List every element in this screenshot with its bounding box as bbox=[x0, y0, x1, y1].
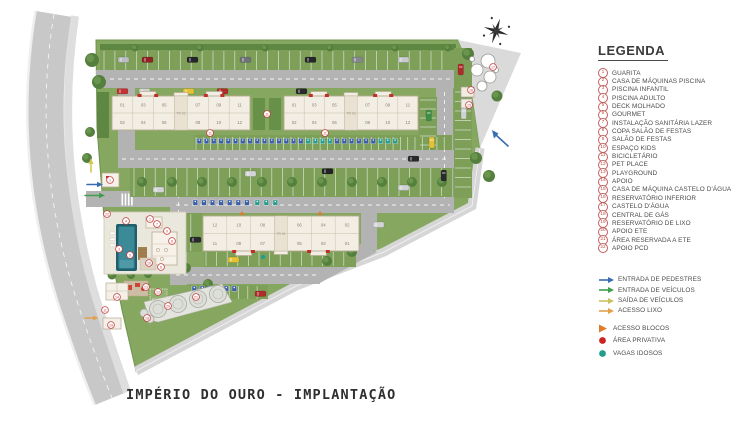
unit-number: 06 bbox=[332, 120, 337, 125]
legend-item-label: GOURMET bbox=[612, 111, 645, 118]
accessible-stall-badge bbox=[245, 200, 250, 205]
accessible-stall-badge bbox=[212, 139, 217, 144]
pedestrian-entrance-arrow bbox=[87, 182, 103, 187]
legend-item: 5DECK MOLHADO bbox=[598, 102, 744, 110]
accessible-stall-badge bbox=[193, 200, 198, 205]
car-icon bbox=[373, 222, 384, 228]
car-icon bbox=[426, 110, 432, 121]
plan-marker-number: 3 bbox=[118, 247, 120, 251]
unit-number: 08 bbox=[260, 223, 265, 228]
legend-item: 9SALÃO DE FESTAS bbox=[598, 136, 744, 144]
unit-number: 10 bbox=[385, 120, 390, 125]
senior-stall-badge bbox=[328, 139, 333, 144]
accessible-stall-badge bbox=[364, 139, 369, 144]
plan-marker-21: 21 bbox=[193, 294, 200, 301]
senior-stall-badge bbox=[320, 139, 325, 144]
private-area-mark bbox=[138, 94, 142, 97]
legend-item: 21ÁREA RESERVADA A ETE bbox=[598, 236, 744, 244]
car-icon bbox=[398, 185, 409, 191]
building-tr-02: 010305070911020406081012TR 02 bbox=[112, 92, 250, 131]
plan-marker-number: 1 bbox=[109, 178, 111, 182]
private-area-mark bbox=[325, 94, 329, 97]
private-area-mark bbox=[232, 250, 236, 253]
legend-arrow-label: ENTRADA DE VEÍCULOS bbox=[618, 287, 695, 294]
unit-number: 10 bbox=[216, 120, 221, 125]
legend-symbol-list: ACESSO BLOCOSÁREA PRIVATIVAVAGAS IDOSOS bbox=[598, 322, 744, 360]
private-area-mark bbox=[389, 94, 393, 97]
unit-number: 09 bbox=[216, 103, 221, 108]
blocks-access-triangle bbox=[598, 324, 608, 333]
unit-number: 05 bbox=[332, 103, 337, 108]
senior-stall-badge bbox=[306, 139, 311, 144]
unit-number: 07 bbox=[365, 103, 370, 108]
plan-marker-number: 9 bbox=[166, 229, 168, 233]
legend-item: 16RESERVATÓRIO INFERIOR bbox=[598, 194, 744, 202]
unit-number: 10 bbox=[236, 223, 241, 228]
accessible-stall-badge bbox=[291, 139, 296, 144]
vehicle-exit-arrow bbox=[598, 297, 614, 305]
plan-marker-number: 15 bbox=[467, 103, 471, 107]
plan-marker-11: 11 bbox=[322, 130, 329, 137]
legend-item-number: 22 bbox=[598, 243, 608, 253]
accessible-stall-badge bbox=[219, 200, 224, 205]
legend-item-label: ESPAÇO KIDS bbox=[612, 145, 656, 152]
car-icon bbox=[118, 57, 129, 63]
unit-number: 12 bbox=[213, 223, 218, 228]
legend-panel: LEGENDA 1GUARITA2CASA DE MÁQUINAS PISCIN… bbox=[598, 42, 744, 360]
legend-item: 18CENTRAL DE GÁS bbox=[598, 211, 744, 219]
legend-item-label: PISCINA INFANTIL bbox=[612, 86, 669, 93]
legend-title: LEGENDA bbox=[598, 43, 668, 61]
site-plan-drawing: 010305070911020406081012TR 0201030507091… bbox=[0, 0, 600, 432]
plan-marker-18: 18 bbox=[144, 315, 151, 322]
pedestrian-entrance-arrow-2 bbox=[492, 130, 508, 146]
legend-item-label: APOIO bbox=[612, 178, 633, 185]
legend-arrow-label: SAÍDA DE VEÍCULOS bbox=[618, 297, 683, 304]
car-icon bbox=[117, 89, 128, 95]
car-icon bbox=[458, 64, 464, 75]
kids-pool bbox=[120, 260, 134, 268]
senior-stall-badge bbox=[264, 200, 269, 205]
legend-item: 7INSTALAÇÃO SANITÁRIA LAZER bbox=[598, 119, 744, 127]
private-area-mark bbox=[326, 250, 330, 253]
plan-marker-13: 13 bbox=[143, 284, 150, 291]
accessible-stall-badge bbox=[349, 139, 354, 144]
private-area-mark bbox=[373, 94, 377, 97]
car-icon bbox=[398, 57, 409, 63]
legend-item: 19RESERVATÓRIO DE LIXO bbox=[598, 219, 744, 227]
plan-marker-number: 20 bbox=[166, 304, 170, 308]
legend-symbol-label: ÁREA PRIVATIVA bbox=[613, 337, 665, 344]
tower-label: TR 03 bbox=[346, 111, 355, 115]
plan-marker-17: 17 bbox=[490, 64, 497, 71]
private-area-mark bbox=[309, 94, 313, 97]
plan-marker-5: 5 bbox=[127, 252, 134, 259]
plan-marker-7: 7 bbox=[154, 221, 161, 228]
car-icon bbox=[352, 57, 363, 63]
unit-number: 06 bbox=[162, 120, 167, 125]
private-area-dot bbox=[598, 336, 608, 345]
legend-item: 12PET PLACE bbox=[598, 161, 744, 169]
unit-number: 08 bbox=[196, 120, 201, 125]
legend-item-label: COPA SALÃO DE FESTAS bbox=[612, 128, 691, 135]
unit-number: 01 bbox=[292, 103, 297, 108]
legend-item: 14APOIO bbox=[598, 177, 744, 185]
unit-number: 02 bbox=[292, 120, 297, 125]
legend-item-label: PET PLACE bbox=[612, 161, 648, 168]
plan-marker-14: 14 bbox=[114, 294, 121, 301]
unit-number: 03 bbox=[141, 103, 146, 108]
accessible-stall-badge bbox=[262, 139, 267, 144]
legend-item-label: CENTRAL DE GÁS bbox=[612, 212, 669, 219]
legend-item: 4PISCINA ADULTO bbox=[598, 94, 744, 102]
unit-number: 04 bbox=[312, 120, 317, 125]
unit-number: 04 bbox=[141, 120, 146, 125]
unit-number: 07 bbox=[260, 241, 265, 246]
unit-number: 09 bbox=[236, 241, 241, 246]
legend-item-label: PISCINA ADULTO bbox=[612, 95, 665, 102]
legend-item: 15CASA DE MÁQUINA CASTELO D'ÁGUA bbox=[598, 186, 744, 194]
accessible-stall-badge bbox=[248, 139, 253, 144]
car-icon bbox=[240, 57, 251, 63]
unit-number: 01 bbox=[345, 241, 350, 246]
accessible-stall-badge bbox=[342, 139, 347, 144]
car-icon bbox=[441, 170, 447, 181]
plan-marker-number: 11 bbox=[103, 308, 107, 312]
private-area-mark bbox=[204, 94, 208, 97]
legend-item-label: GUARITA bbox=[612, 70, 641, 77]
plan-marker-12: 12 bbox=[155, 289, 162, 296]
senior-stall-badge bbox=[386, 139, 391, 144]
plan-marker-11: 11 bbox=[264, 111, 271, 118]
private-area-mark bbox=[251, 250, 255, 253]
accessible-stall-badge bbox=[241, 139, 246, 144]
plan-marker-11: 11 bbox=[207, 130, 214, 137]
plan-marker-number: 6 bbox=[160, 265, 162, 269]
plan-marker-16: 16 bbox=[468, 87, 475, 94]
unit-number: 04 bbox=[321, 223, 326, 228]
plan-marker-9: 9 bbox=[164, 228, 171, 235]
legend-item: 11BICICLETÁRIO bbox=[598, 152, 744, 160]
accessible-stall-badge bbox=[270, 139, 275, 144]
legend-item-label: CASA DE MÁQUINA CASTELO D'ÁGUA bbox=[612, 186, 731, 193]
plan-marker-11: 11 bbox=[102, 307, 109, 314]
tower-label: TR 01 bbox=[276, 232, 285, 236]
private-area-mark bbox=[154, 94, 158, 97]
accessible-stall-badge bbox=[255, 139, 260, 144]
private-area-mark bbox=[220, 94, 224, 97]
legend-item-label: CASA DE MÁQUINAS PISCINA bbox=[612, 78, 705, 85]
building-tr-01: 121008060402110907050301TR 01 bbox=[203, 216, 359, 256]
legend-item-label: APOIO ETE bbox=[612, 228, 647, 235]
north-compass-icon bbox=[480, 15, 513, 48]
legend-item-list: 1GUARITA2CASA DE MÁQUINAS PISCINA3PISCIN… bbox=[598, 69, 744, 253]
legend-symbol-label: ACESSO BLOCOS bbox=[613, 325, 669, 332]
legend-item: 10ESPAÇO KIDS bbox=[598, 144, 744, 152]
unit-number: 11 bbox=[213, 241, 218, 246]
plan-marker-8: 8 bbox=[169, 238, 176, 245]
plan-marker-4: 4 bbox=[123, 218, 130, 225]
plan-marker-number: 14 bbox=[115, 295, 119, 299]
plan-marker-10: 10 bbox=[146, 260, 153, 267]
legend-item: 20APOIO ETE bbox=[598, 228, 744, 236]
accessible-stall-badge bbox=[299, 139, 304, 144]
car-icon bbox=[245, 171, 256, 177]
senior-stall-badge bbox=[255, 200, 260, 205]
unit-number: 05 bbox=[297, 241, 302, 246]
plan-marker-6: 6 bbox=[158, 264, 165, 271]
plan-marker-3: 3 bbox=[116, 246, 123, 253]
legend-arrow-label: ENTRADA DE PEDESTRES bbox=[618, 276, 701, 283]
legend-arrow-list: ENTRADA DE PEDESTRESENTRADA DE VEÍCULOSS… bbox=[598, 275, 744, 317]
car-icon bbox=[408, 156, 419, 162]
legend-item: 13PLAYGROUND bbox=[598, 169, 744, 177]
unit-number: 01 bbox=[120, 103, 125, 108]
legend-item: 17CASTELO D'ÁGUA bbox=[598, 203, 744, 211]
car-icon bbox=[429, 137, 435, 148]
car-icon bbox=[305, 57, 316, 63]
legend-item-label: INSTALAÇÃO SANITÁRIA LAZER bbox=[612, 120, 712, 127]
legend-item: 2CASA DE MÁQUINAS PISCINA bbox=[598, 77, 744, 85]
plan-marker-number: 21 bbox=[194, 295, 198, 299]
plan-marker-1: 1 bbox=[107, 177, 114, 184]
plan-marker-number: 5 bbox=[129, 253, 131, 257]
unit-number: 12 bbox=[406, 120, 411, 125]
legend-arrow-item: ACESSO LIXO bbox=[598, 306, 744, 316]
unit-number: 11 bbox=[406, 103, 411, 108]
plan-marker-number: 2 bbox=[149, 217, 151, 221]
plan-marker-2: 2 bbox=[147, 216, 154, 223]
car-icon bbox=[322, 169, 333, 175]
accessible-stall-badge bbox=[371, 139, 376, 144]
tower-label: TR 02 bbox=[176, 111, 185, 115]
pedestrian-entrance-arrow bbox=[598, 276, 614, 284]
legend-arrow-item: SAÍDA DE VEÍCULOS bbox=[598, 295, 744, 305]
legend-item: 1GUARITA bbox=[598, 69, 744, 77]
accessible-stall-badge bbox=[232, 286, 237, 291]
plan-marker-number: 4 bbox=[125, 219, 127, 223]
unit-number: 03 bbox=[312, 103, 317, 108]
senior-parking-dot bbox=[598, 349, 608, 358]
legend-arrow-item: ENTRADA DE PEDESTRES bbox=[598, 275, 744, 285]
legend-item: 3PISCINA INFANTIL bbox=[598, 86, 744, 94]
accessible-stall-badge bbox=[202, 200, 207, 205]
legend-item-label: RESERVATÓRIO INFERIOR bbox=[612, 195, 696, 202]
senior-stall-badge bbox=[393, 139, 398, 144]
unit-number: 11 bbox=[237, 103, 242, 108]
plan-marker-19: 19 bbox=[108, 322, 115, 329]
accessible-stall-badge bbox=[357, 139, 362, 144]
senior-parking-dot bbox=[261, 255, 265, 259]
legend-arrow-label: ACESSO LIXO bbox=[618, 307, 662, 314]
legend-item: 22APOIO PCD bbox=[598, 244, 744, 252]
plan-marker-15: 15 bbox=[466, 102, 473, 109]
car-icon bbox=[153, 187, 164, 193]
car-icon bbox=[142, 57, 153, 63]
unit-number: 05 bbox=[162, 103, 167, 108]
plan-marker-22: 22 bbox=[104, 211, 111, 218]
private-area-mark bbox=[307, 250, 311, 253]
legend-symbol-item: ÁREA PRIVATIVA bbox=[598, 335, 744, 348]
unit-number: 09 bbox=[385, 103, 390, 108]
accessible-stall-badge bbox=[226, 139, 231, 144]
car-icon bbox=[255, 291, 266, 297]
accessible-stall-badge bbox=[210, 200, 215, 205]
senior-stall-badge bbox=[378, 139, 383, 144]
plan-marker-20: 20 bbox=[165, 303, 172, 310]
car-icon bbox=[187, 57, 198, 63]
legend-item-label: CASTELO D'ÁGUA bbox=[612, 203, 669, 210]
plan-marker-number: 18 bbox=[145, 316, 149, 320]
accessible-stall-badge bbox=[284, 139, 289, 144]
vehicle-entrance-arrow bbox=[598, 286, 614, 294]
plan-marker-number: 12 bbox=[156, 290, 160, 294]
plan-title: IMPÉRIO DO OURO - IMPLANTAÇÃO bbox=[126, 387, 397, 403]
accessible-stall-badge bbox=[227, 200, 232, 205]
car-icon bbox=[461, 108, 467, 119]
plan-marker-number: 11 bbox=[323, 131, 327, 135]
legend-item-label: SALÃO DE FESTAS bbox=[612, 136, 672, 143]
car-icon bbox=[296, 89, 307, 95]
unit-number: 06 bbox=[297, 223, 302, 228]
building-tr-03: 010305070911020406081012TR 03 bbox=[284, 92, 418, 131]
legend-item-label: BICICLETÁRIO bbox=[612, 153, 658, 160]
plan-marker-number: 11 bbox=[265, 112, 269, 116]
accessible-stall-badge bbox=[197, 139, 202, 144]
plan-marker-number: 10 bbox=[147, 261, 151, 265]
legend-item: 6GOURMET bbox=[598, 111, 744, 119]
plan-marker-number: 8 bbox=[171, 239, 173, 243]
senior-stall-badge bbox=[313, 139, 318, 144]
unit-number: 03 bbox=[321, 241, 326, 246]
unit-number: 07 bbox=[196, 103, 201, 108]
legend-item-label: APOIO PCD bbox=[612, 245, 648, 252]
unit-number: 02 bbox=[120, 120, 125, 125]
plan-marker-number: 7 bbox=[156, 222, 158, 226]
accessible-stall-badge bbox=[204, 139, 209, 144]
site-plan-page: 010305070911020406081012TR 0201030507091… bbox=[0, 0, 744, 432]
plan-marker-number: 16 bbox=[469, 88, 473, 92]
accessible-stall-badge bbox=[236, 200, 241, 205]
car-icon bbox=[190, 237, 201, 243]
unit-number: 02 bbox=[345, 223, 350, 228]
unit-number: 12 bbox=[237, 120, 242, 125]
trash-access-arrow bbox=[598, 307, 614, 315]
legend-arrow-item: ENTRADA DE VEÍCULOS bbox=[598, 285, 744, 295]
plan-marker-number: 13 bbox=[144, 285, 148, 289]
legend-symbol-item: VAGAS IDOSOS bbox=[598, 347, 744, 360]
loungers bbox=[110, 232, 115, 247]
accessible-stall-badge bbox=[335, 139, 340, 144]
legend-item-label: PLAYGROUND bbox=[612, 170, 657, 177]
accessible-stall-badge bbox=[277, 139, 282, 144]
plan-marker-number: 19 bbox=[109, 323, 113, 327]
legend-item-label: ÁREA RESERVADA A ETE bbox=[612, 237, 691, 244]
plan-marker-number: 17 bbox=[491, 65, 495, 69]
car-icon bbox=[228, 257, 239, 263]
plan-marker-number: 11 bbox=[208, 131, 212, 135]
legend-item: 8COPA SALÃO DE FESTAS bbox=[598, 127, 744, 135]
senior-stall-badge bbox=[273, 200, 278, 205]
legend-symbol-label: VAGAS IDOSOS bbox=[613, 350, 662, 357]
legend-symbol-item: ACESSO BLOCOS bbox=[598, 322, 744, 335]
accessible-stall-badge bbox=[233, 139, 238, 144]
accessible-stall-badge bbox=[219, 139, 224, 144]
legend-item-label: RESERVATÓRIO DE LIXO bbox=[612, 220, 691, 227]
unit-number: 08 bbox=[365, 120, 370, 125]
legend-item-label: DECK MOLHADO bbox=[612, 103, 665, 110]
plan-marker-number: 22 bbox=[105, 212, 109, 216]
